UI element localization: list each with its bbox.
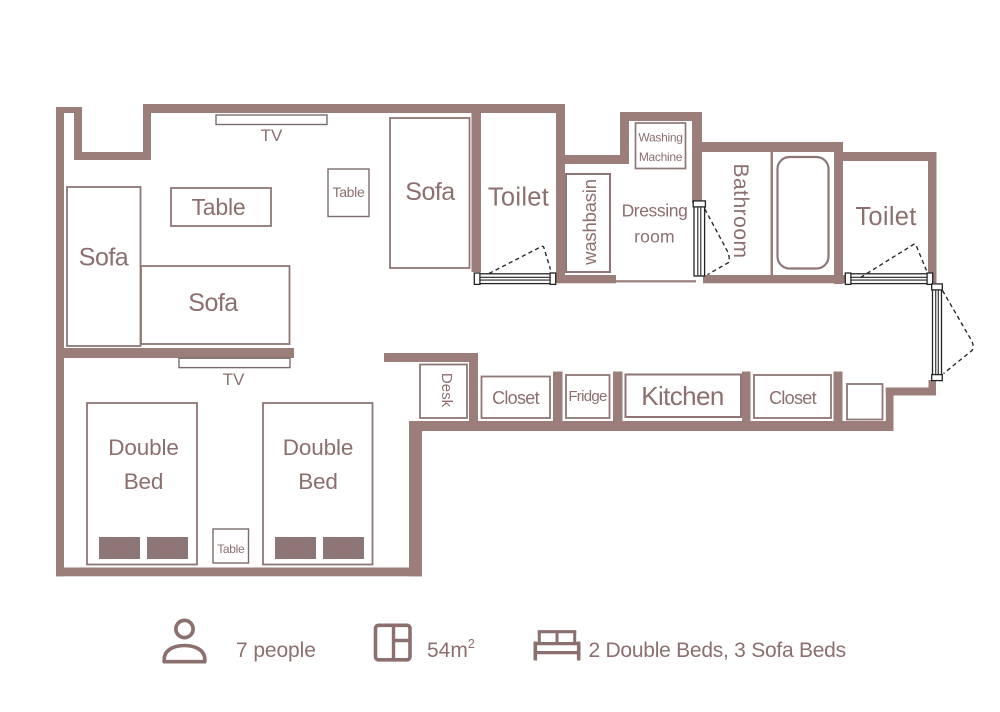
svg-text:Bed: Bed bbox=[298, 469, 338, 494]
svg-text:Washing: Washing bbox=[638, 131, 682, 145]
svg-text:Sofa: Sofa bbox=[79, 244, 129, 272]
svg-text:Bathroom: Bathroom bbox=[729, 163, 752, 258]
svg-text:Closet: Closet bbox=[769, 388, 817, 408]
svg-text:Fridge: Fridge bbox=[568, 388, 607, 405]
svg-text:washbasin: washbasin bbox=[579, 179, 600, 266]
svg-text:Toilet: Toilet bbox=[855, 203, 916, 231]
svg-text:TV: TV bbox=[223, 370, 245, 389]
svg-text:room: room bbox=[634, 227, 675, 247]
svg-text:Sofa: Sofa bbox=[188, 289, 238, 317]
svg-text:Double: Double bbox=[108, 435, 178, 460]
svg-text:Double: Double bbox=[283, 435, 353, 460]
svg-text:54m2: 54m2 bbox=[427, 637, 475, 662]
svg-text:Sofa: Sofa bbox=[405, 178, 455, 206]
svg-text:Table: Table bbox=[192, 194, 246, 220]
svg-text:2 Double Beds, 3 Sofa Beds: 2 Double Beds, 3 Sofa Beds bbox=[589, 639, 846, 662]
svg-text:7 people: 7 people bbox=[236, 639, 316, 662]
svg-text:TV: TV bbox=[261, 126, 283, 145]
svg-text:Machine: Machine bbox=[639, 150, 683, 164]
svg-text:Toilet: Toilet bbox=[488, 184, 549, 212]
svg-text:Table: Table bbox=[217, 542, 245, 556]
svg-text:Table: Table bbox=[333, 184, 365, 200]
svg-text:Closet: Closet bbox=[492, 388, 540, 408]
svg-text:Desk: Desk bbox=[438, 373, 455, 408]
svg-text:Bed: Bed bbox=[124, 469, 164, 494]
svg-text:Kitchen: Kitchen bbox=[641, 381, 724, 411]
svg-text:Dressing: Dressing bbox=[622, 201, 688, 221]
